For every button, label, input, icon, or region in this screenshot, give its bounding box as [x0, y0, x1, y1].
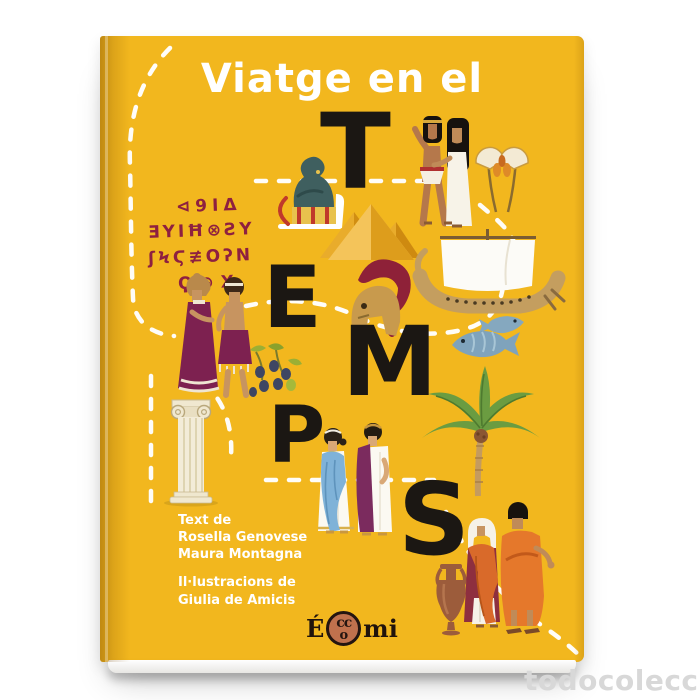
product-photo: ⊲9IΔ ƎYIĦ⊗ƧY ʃϞϚ≢ΟʔN Ϙ⊕X [0, 0, 700, 700]
credits-illustrations-label: Il·lustracions de [178, 574, 307, 591]
inscription-line: Ϙ⊕X [178, 272, 241, 294]
publisher-logo-o: o [329, 628, 358, 643]
book-spine-highlight [105, 36, 108, 662]
watermark-text: todocoleccion [524, 664, 700, 697]
big-letter-p: P [268, 397, 325, 475]
credits-block: Text de Rosella Genovese Maura Montagna … [178, 512, 307, 609]
credits-author: Maura Montagna [178, 546, 307, 563]
inscription-line: ⊲9IΔ [176, 195, 242, 217]
credits-author: Rosella Genovese [178, 529, 307, 546]
book-spine-shadow [100, 36, 130, 662]
credits-text-label: Text de [178, 512, 307, 529]
big-letter-e: E [263, 255, 322, 341]
publisher-logo-circle-icon: cc o [326, 611, 361, 646]
big-letter-t: T [320, 100, 391, 204]
inscription-line: ʃϞϚ≢ΟʔN [148, 245, 254, 269]
publisher-logo-e: É [306, 614, 324, 643]
book-right-edge-shade [574, 36, 584, 662]
publisher-logo-mi: mi [363, 614, 398, 643]
book-page-edges [108, 660, 576, 673]
big-letter-m: M [342, 314, 438, 410]
credits-gap [178, 563, 307, 574]
credits-illustrator: Giulia de Amicis [178, 592, 307, 609]
big-letter-s: S [398, 470, 470, 570]
inscription-line: ƎYIĦ⊗ƧY [148, 219, 255, 243]
publisher-logo: É cc o mi [306, 611, 398, 646]
